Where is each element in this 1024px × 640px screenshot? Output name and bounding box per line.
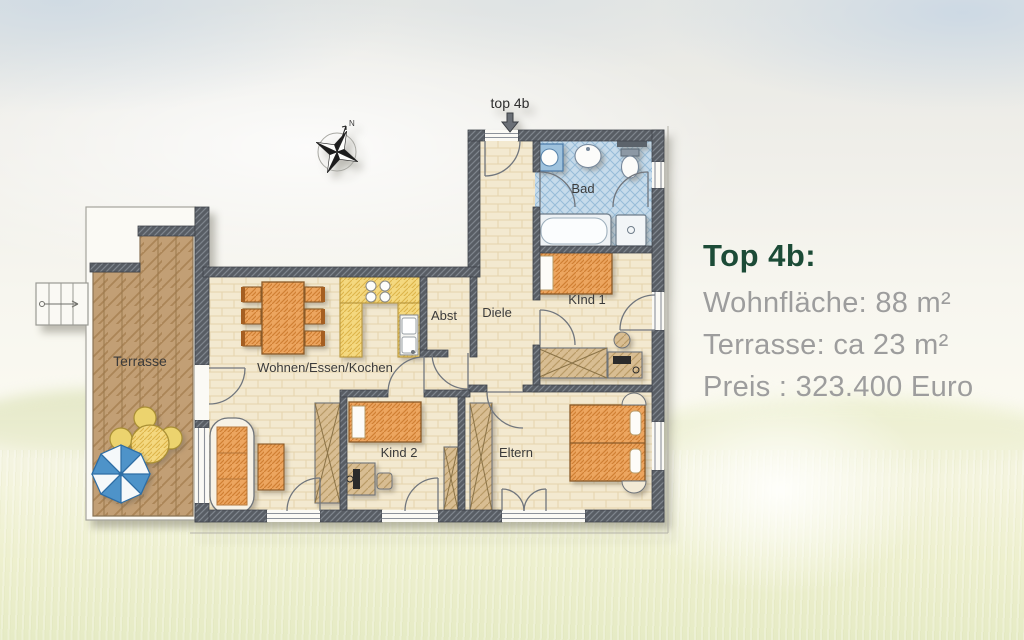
shower-tray (616, 215, 646, 246)
bed-kind1 (537, 252, 612, 294)
entrance-marker: top 4b (491, 95, 530, 132)
bed-kind2 (349, 402, 421, 442)
compass-icon: N (306, 119, 367, 183)
room-label-abst: Abst (431, 308, 457, 323)
terrace-area-text: Terrasse: ca 23 m² (703, 324, 973, 366)
room-label-terrasse: Terrasse (113, 353, 167, 369)
room-label-diele: Diele (482, 305, 512, 320)
kitchen-sink (400, 315, 418, 355)
room-label-eltern: Eltern (499, 445, 533, 460)
washbasin-oval (575, 145, 601, 168)
unit-title: Top 4b: (703, 238, 973, 274)
room-label-bad: Bad (571, 181, 594, 196)
bathroom-shelf (617, 141, 647, 147)
wardrobe-kind2 (444, 447, 458, 510)
price-text: Preis : 323.400 Euro (703, 366, 973, 408)
coffee-table (258, 444, 284, 490)
terrace: Terrasse (36, 207, 195, 520)
wardrobe-eltern (470, 403, 492, 511)
entrance-label: top 4b (491, 95, 530, 111)
umbrella-icon (92, 445, 150, 503)
dining-table-set (241, 282, 325, 354)
sofa (210, 418, 254, 514)
exterior-stairs (36, 283, 88, 325)
living-area-text: Wohnfläche: 88 m² (703, 282, 973, 324)
compass-north-label: N (349, 119, 355, 128)
bathtub (537, 214, 611, 248)
info-panel: Top 4b: Wohnfläche: 88 m² Terrasse: ca 2… (703, 238, 973, 408)
room-label-kind2: Kind 2 (381, 445, 418, 460)
wardrobe-kind1 (537, 348, 607, 378)
room-label-kind1: KInd 1 (568, 292, 606, 307)
bed-eltern (570, 393, 646, 493)
room-label-wohnen: Wohnen/Essen/Kochen (257, 360, 393, 375)
wardrobe-living (315, 403, 340, 503)
entrance-arrow-icon (502, 113, 518, 132)
